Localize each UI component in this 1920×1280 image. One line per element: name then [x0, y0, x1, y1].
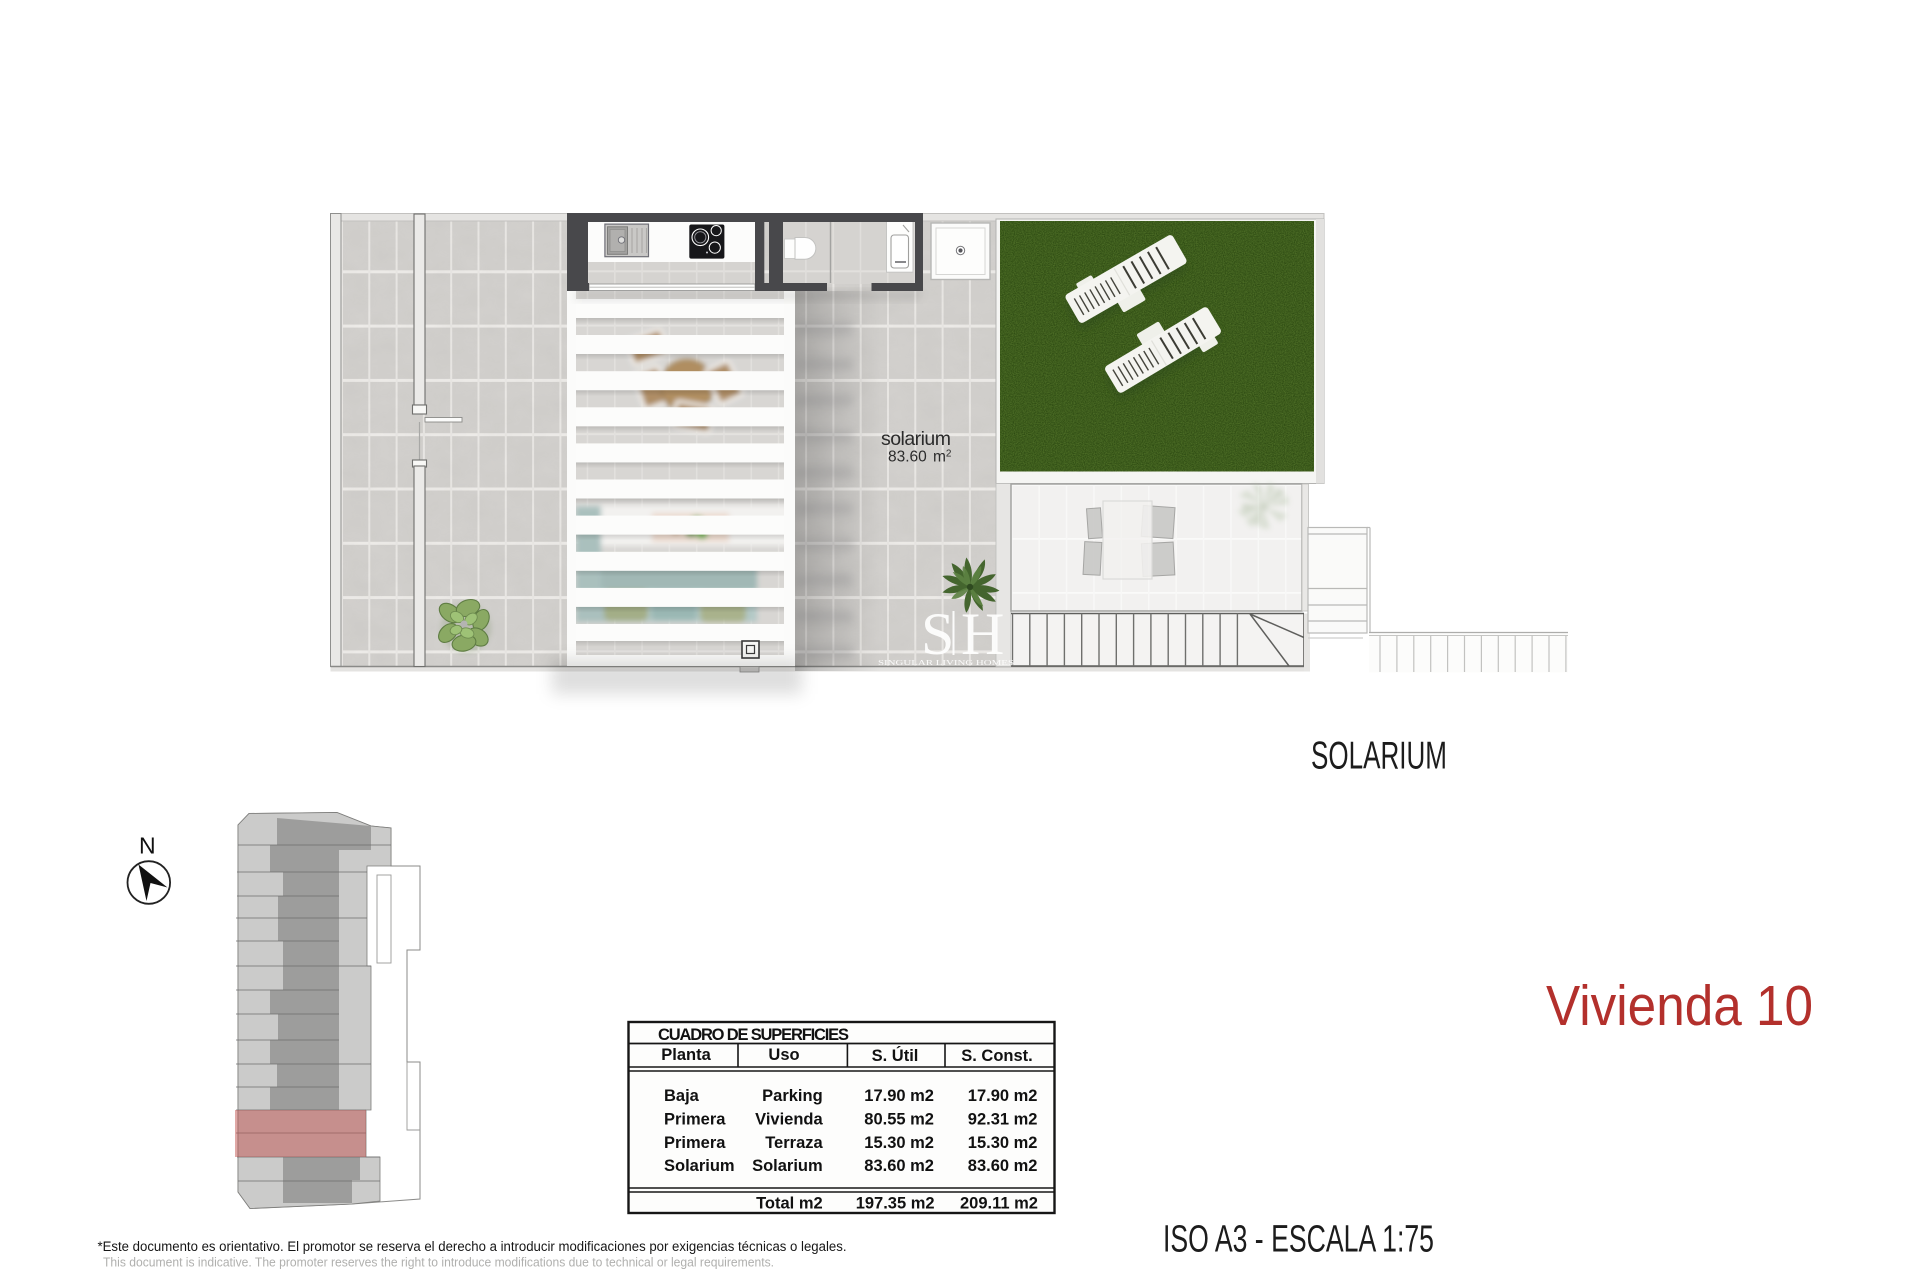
- svg-text:Solarium: Solarium: [752, 1157, 823, 1175]
- svg-text:SINGULAR LIVING HOMES: SINGULAR LIVING HOMES: [878, 658, 1014, 667]
- svg-text:15.30 m2: 15.30 m2: [968, 1134, 1038, 1152]
- svg-text:This document is indicative. T: This document is indicative. The promote…: [103, 1255, 774, 1270]
- svg-text:209.11 m2: 209.11 m2: [960, 1195, 1038, 1213]
- svg-text:Parking: Parking: [762, 1087, 823, 1105]
- svg-text:15.30 m2: 15.30 m2: [864, 1134, 934, 1152]
- svg-text:S. Const.: S. Const.: [961, 1047, 1033, 1065]
- svg-text:Primera: Primera: [664, 1111, 726, 1129]
- svg-text:17.90 m2: 17.90 m2: [968, 1087, 1038, 1105]
- svg-text:ISO A3 - ESCALA 1:75: ISO A3 - ESCALA 1:75: [1163, 1219, 1434, 1261]
- svg-text:Total m2: Total m2: [756, 1195, 823, 1213]
- svg-text:S. Útil: S. Útil: [872, 1046, 919, 1065]
- svg-text:92.31 m2: 92.31 m2: [968, 1111, 1038, 1129]
- svg-text:N: N: [139, 833, 156, 859]
- svg-text:Primera: Primera: [664, 1134, 726, 1152]
- svg-text:83.60 m2: 83.60 m2: [968, 1157, 1038, 1175]
- svg-text:197.35 m2: 197.35 m2: [856, 1195, 935, 1213]
- svg-text:Baja: Baja: [664, 1087, 700, 1105]
- svg-text:17.90 m2: 17.90 m2: [864, 1087, 934, 1105]
- svg-text:Uso: Uso: [768, 1046, 799, 1064]
- svg-text:83.60 m2: 83.60 m2: [888, 449, 952, 466]
- svg-text:80.55 m2: 80.55 m2: [864, 1111, 934, 1129]
- svg-text:Planta: Planta: [661, 1046, 711, 1064]
- svg-text:CUADRO DE SUPERFICIES: CUADRO DE SUPERFICIES: [658, 1026, 849, 1044]
- svg-text:solarium: solarium: [881, 428, 951, 450]
- svg-text:Solarium: Solarium: [664, 1157, 735, 1175]
- svg-text:Vivienda 10: Vivienda 10: [1546, 974, 1813, 1038]
- svg-text:83.60 m2: 83.60 m2: [864, 1157, 934, 1175]
- svg-text:Vivienda: Vivienda: [755, 1111, 823, 1129]
- svg-text:Terraza: Terraza: [765, 1134, 823, 1152]
- svg-text:*Este documento es orientativo: *Este documento es orientativo. El promo…: [98, 1239, 847, 1254]
- svg-text:SOLARIUM: SOLARIUM: [1311, 735, 1447, 778]
